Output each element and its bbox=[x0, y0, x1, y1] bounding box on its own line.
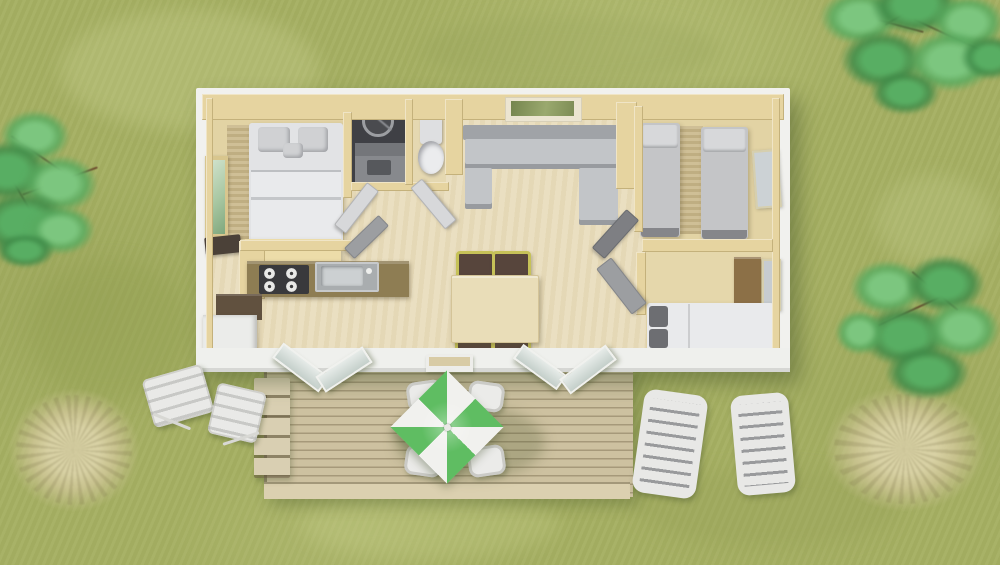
burner bbox=[264, 268, 275, 279]
pillow-dark bbox=[649, 306, 668, 327]
twin-bedroom-rug bbox=[679, 126, 703, 234]
deck-edge bbox=[264, 482, 630, 499]
duvet-fold bbox=[251, 197, 341, 200]
pillow bbox=[703, 129, 746, 152]
wardrobe bbox=[734, 257, 761, 305]
sofa-arm-left bbox=[465, 168, 492, 209]
lounger-slats bbox=[639, 398, 700, 490]
foliage-blob bbox=[0, 233, 55, 268]
wall-lip-right bbox=[772, 98, 780, 350]
parasol-pole bbox=[444, 424, 451, 431]
lounger-slats bbox=[738, 401, 789, 487]
burner bbox=[264, 281, 275, 292]
sofa-back bbox=[463, 125, 619, 140]
sink-basin bbox=[321, 266, 363, 286]
wall-top bbox=[202, 94, 784, 120]
scene bbox=[0, 0, 1000, 565]
door-threshold-step bbox=[429, 357, 470, 366]
dry-grass-tuft bbox=[8, 388, 140, 512]
tree-top-left bbox=[0, 85, 150, 270]
pillow-small bbox=[283, 143, 303, 158]
vanity-basin bbox=[367, 160, 391, 175]
tuft-texture bbox=[834, 394, 977, 505]
wall-room-divider bbox=[642, 239, 773, 252]
bush-right bbox=[835, 250, 1000, 408]
duvet bbox=[251, 170, 341, 243]
faucet bbox=[366, 268, 372, 274]
sun-lounger bbox=[730, 392, 796, 497]
foliage-blob bbox=[870, 70, 940, 115]
toilet-bowl bbox=[418, 141, 444, 174]
duvet-fold bbox=[688, 304, 690, 350]
wall-twin-left bbox=[634, 106, 643, 232]
wall-lip-left bbox=[206, 98, 213, 350]
sofa-seat bbox=[465, 139, 617, 169]
wall-bathroom-mid bbox=[405, 99, 413, 185]
pillow-dark bbox=[649, 329, 668, 348]
tree-top-right bbox=[810, 0, 1000, 135]
burner bbox=[286, 268, 297, 279]
wall-bathroom-right bbox=[445, 99, 463, 175]
burner bbox=[286, 281, 297, 292]
wall-bedroom-bottom bbox=[240, 240, 353, 251]
bed-foot bbox=[641, 228, 679, 237]
grass-patch bbox=[300, 492, 560, 558]
bed-foot bbox=[702, 230, 747, 239]
dining-table bbox=[451, 275, 539, 343]
living-window-glass bbox=[511, 101, 574, 116]
shower-tray bbox=[355, 143, 405, 156]
foliage-blob bbox=[835, 310, 885, 355]
pillow bbox=[642, 125, 678, 148]
foliage-blob bbox=[885, 345, 970, 400]
grass-patch bbox=[420, 15, 720, 85]
toilet-body bbox=[420, 117, 442, 144]
sofa-arm-right bbox=[579, 168, 618, 225]
tuft-texture bbox=[16, 395, 132, 504]
